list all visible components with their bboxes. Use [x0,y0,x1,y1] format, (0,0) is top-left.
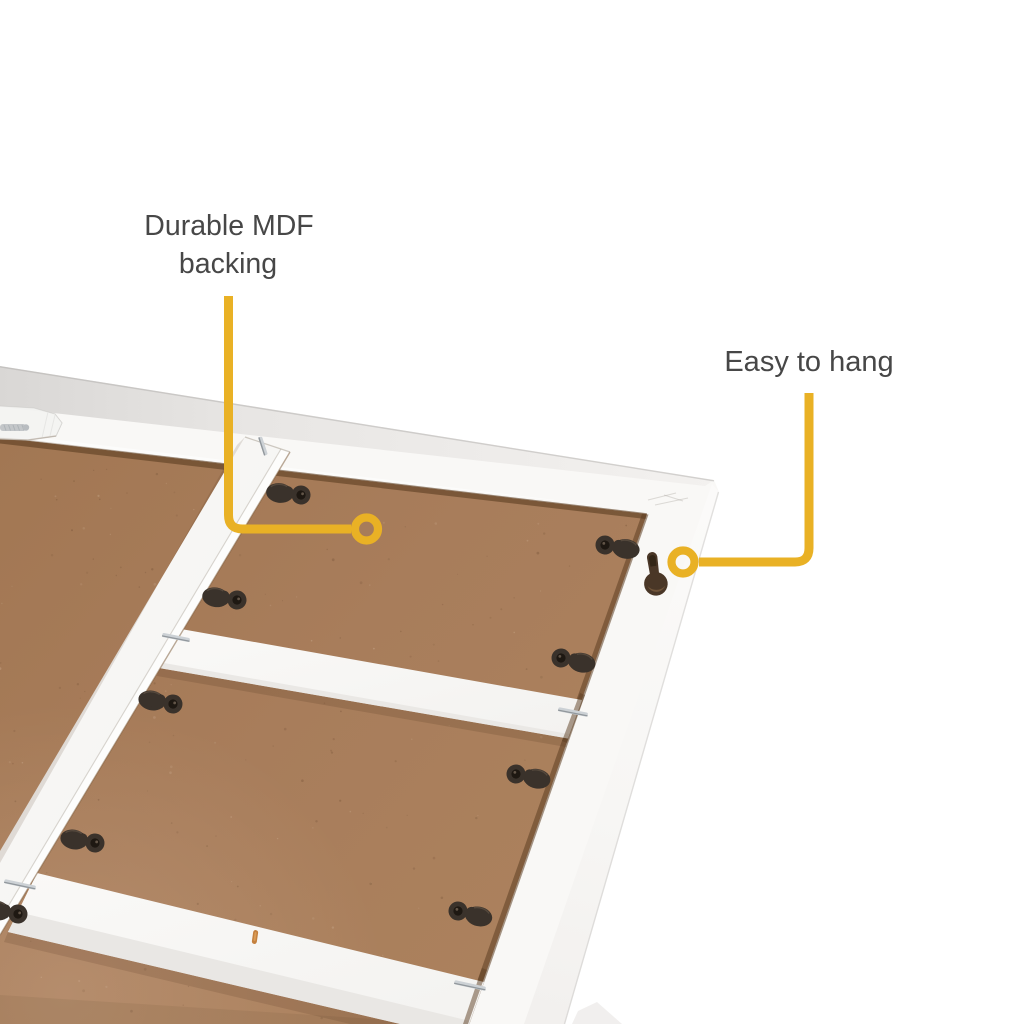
svg-text:backing: backing [179,248,277,280]
svg-text:Durable MDF: Durable MDF [144,210,313,242]
svg-text:Easy to hang: Easy to hang [724,346,893,378]
